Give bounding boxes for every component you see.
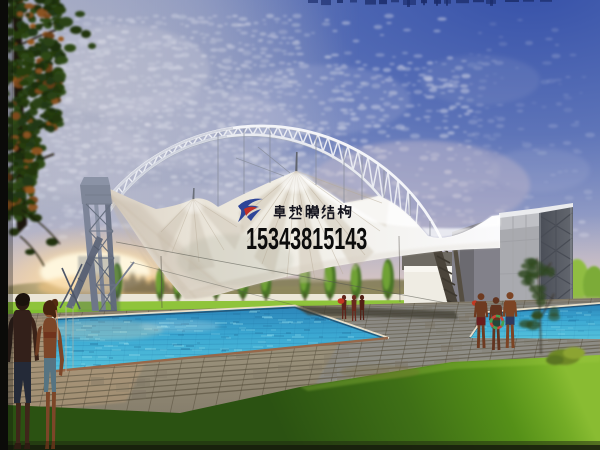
svg-text:15343815143: 15343815143 xyxy=(246,220,367,256)
